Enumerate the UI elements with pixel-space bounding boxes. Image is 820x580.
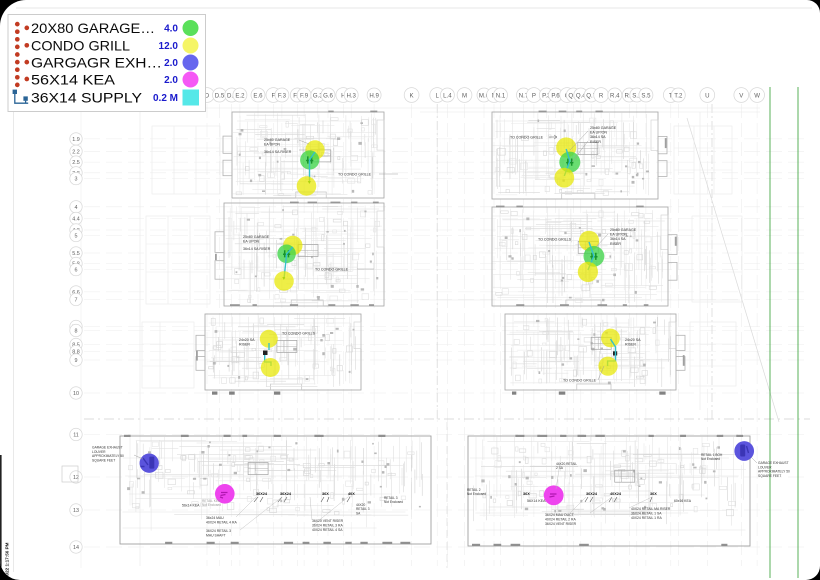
svg-text:2.0: 2.0 [164,75,178,86]
svg-text:3: 3 [75,177,78,183]
svg-text:CONDO GRILL: CONDO GRILL [31,38,130,53]
svg-text:4.4: 4.4 [72,217,80,223]
svg-text:24x20 SA: 24x20 SA [625,338,641,342]
svg-text:4: 4 [75,205,78,211]
svg-text:36X24: 36X24 [280,492,292,496]
svg-text:H.3: H.3 [346,92,356,99]
svg-text:GARGAGR EXH…: GARGAGR EXH… [31,55,162,70]
svg-text:0.2 M: 0.2 M [153,93,178,104]
svg-text:2022 1:17:56 PM: 2022 1:17:56 PM [5,542,10,578]
svg-text:25x80 GARAGE: 25x80 GARAGE [264,138,291,142]
svg-text:K: K [410,92,414,99]
svg-text:H.9: H.9 [369,92,379,99]
svg-text:TO CONDO GRILLE: TO CONDO GRILLE [315,268,349,272]
svg-text:36X14 SUPPLY: 36X14 SUPPLY [31,90,142,105]
svg-text:36X24 RETAIL 3: 36X24 RETAIL 3 [206,529,231,533]
svg-text:25x80 GARAGE: 25x80 GARAGE [610,228,637,232]
svg-text:Not Enclosed: Not Enclosed [701,457,720,461]
svg-text:40X24 RETAIL 1 RA: 40X24 RETAIL 1 RA [631,516,662,520]
svg-text:13: 13 [73,508,79,514]
svg-text:G.6: G.6 [323,92,333,99]
svg-text:T.2: T.2 [674,92,683,99]
svg-text:5.5: 5.5 [72,251,80,257]
svg-text:14: 14 [73,545,79,551]
svg-text:D.5: D.5 [215,92,225,99]
svg-text:R.4: R.4 [610,92,620,99]
svg-text:40X24 RETAIL MA RISER: 40X24 RETAIL MA RISER [631,507,671,511]
svg-text:40X24 RETAIL 2 RA: 40X24 RETAIL 2 RA [545,517,576,521]
svg-text:36X: 36X [322,492,329,496]
svg-text:36X24: 36X24 [586,492,598,496]
svg-text:36x14 SA RISER: 36x14 SA RISER [243,247,271,251]
svg-text:EA UPON: EA UPON [243,240,259,244]
svg-text:Not Enclosed: Not Enclosed [384,500,403,504]
svg-text:MAU SHAFT: MAU SHAFT [206,533,226,537]
svg-text:EA UPON: EA UPON [264,143,280,147]
svg-text:TO CONDO GRILLE: TO CONDO GRILLE [563,379,597,383]
svg-text:E.2: E.2 [235,92,245,99]
svg-text:RISER: RISER [239,343,250,347]
svg-text:60x16 KEA: 60x16 KEA [674,499,692,503]
svg-text:U: U [705,92,709,99]
svg-text:EA UP/ON: EA UP/ON [610,233,627,237]
svg-text:Not Enclosed: Not Enclosed [202,503,221,507]
svg-text:TO CONDO GRILLE: TO CONDO GRILLE [510,136,544,140]
svg-text:25x80 GARAGE: 25x80 GARAGE [590,126,617,130]
svg-text:EA UP/ON: EA UP/ON [590,131,607,135]
svg-text:L.4: L.4 [443,92,452,99]
svg-text:40X24 RETAIL 4 RA: 40X24 RETAIL 4 RA [206,520,237,524]
svg-text:RISER: RISER [610,242,621,246]
svg-text:N.1: N.1 [496,92,506,99]
svg-text:20X80 GARAGE…: 20X80 GARAGE… [31,21,155,36]
svg-text:8: 8 [75,329,78,335]
svg-text:1.9: 1.9 [72,137,80,143]
svg-text:TO CONDO GRILLE: TO CONDO GRILLE [338,173,372,177]
svg-text:7: 7 [75,298,78,304]
svg-text:36X: 36X [523,492,530,496]
svg-text:TO CONDO GRILLS: TO CONDO GRILLS [538,238,572,242]
svg-text:E.6: E.6 [253,92,263,99]
svg-text:SQUARE FEET: SQUARE FEET [92,458,115,462]
svg-text:36X24: 36X24 [256,492,268,496]
svg-text:6: 6 [75,268,78,274]
svg-text:36x14 SA: 36x14 SA [610,237,626,241]
svg-text:56X14 KEA: 56X14 KEA [527,499,546,503]
svg-text:R: R [599,92,604,99]
svg-text:2.5: 2.5 [72,160,80,166]
svg-text:5: 5 [75,234,78,240]
svg-text:36X24 MAU DUCT: 36X24 MAU DUCT [545,513,574,517]
svg-text:TO CONDO GRILLS: TO CONDO GRILLS [282,332,316,336]
svg-text:F.9: F.9 [300,92,309,99]
svg-text:2.0: 2.0 [164,58,178,69]
svg-text:25x80 GARAGE: 25x80 GARAGE [243,235,270,239]
svg-text:L: L [436,92,440,99]
svg-text:56X14 KEA: 56X14 KEA [31,72,116,87]
svg-text:2 SA: 2 SA [556,466,564,470]
svg-text:40X: 40X [348,492,355,496]
svg-text:12.0: 12.0 [159,41,179,52]
svg-text:24x20 SA: 24x20 SA [239,338,255,342]
svg-text:11: 11 [73,433,79,439]
svg-text:F.3: F.3 [278,92,287,99]
svg-text:40X24: 40X24 [610,492,622,496]
svg-text:9: 9 [75,358,78,364]
svg-text:SQUARE FEET: SQUARE FEET [758,474,781,478]
svg-text:4.0: 4.0 [164,24,178,35]
svg-text:10: 10 [73,391,79,397]
svg-text:36X: 36X [650,492,657,496]
svg-text:36x24 MAU: 36x24 MAU [206,516,224,520]
svg-text:M: M [462,92,467,99]
svg-text:RISER: RISER [590,140,601,144]
svg-text:Not Enclosed: Not Enclosed [467,492,486,496]
svg-text:40X24 RETAIL 4 SA: 40X24 RETAIL 4 SA [312,528,343,532]
svg-text:P: P [532,92,536,99]
svg-text:2.2: 2.2 [72,149,80,155]
svg-text:56x14 KEA: 56x14 KEA [182,504,200,508]
svg-text:W: W [754,92,760,99]
svg-text:36x14 SA: 36x14 SA [590,135,606,139]
svg-text:RISER: RISER [625,343,636,347]
svg-text:36x14 SA RISER: 36x14 SA RISER [264,150,292,154]
svg-text:36X24 VENT RISER: 36X24 VENT RISER [545,522,577,526]
svg-text:36X24 RETAIL 3 RA: 36X24 RETAIL 3 RA [312,523,343,527]
svg-text:S.5: S.5 [641,92,651,99]
svg-text:36X24 RETAIL 1 SA: 36X24 RETAIL 1 SA [631,511,662,515]
svg-text:P.6: P.6 [551,92,560,99]
